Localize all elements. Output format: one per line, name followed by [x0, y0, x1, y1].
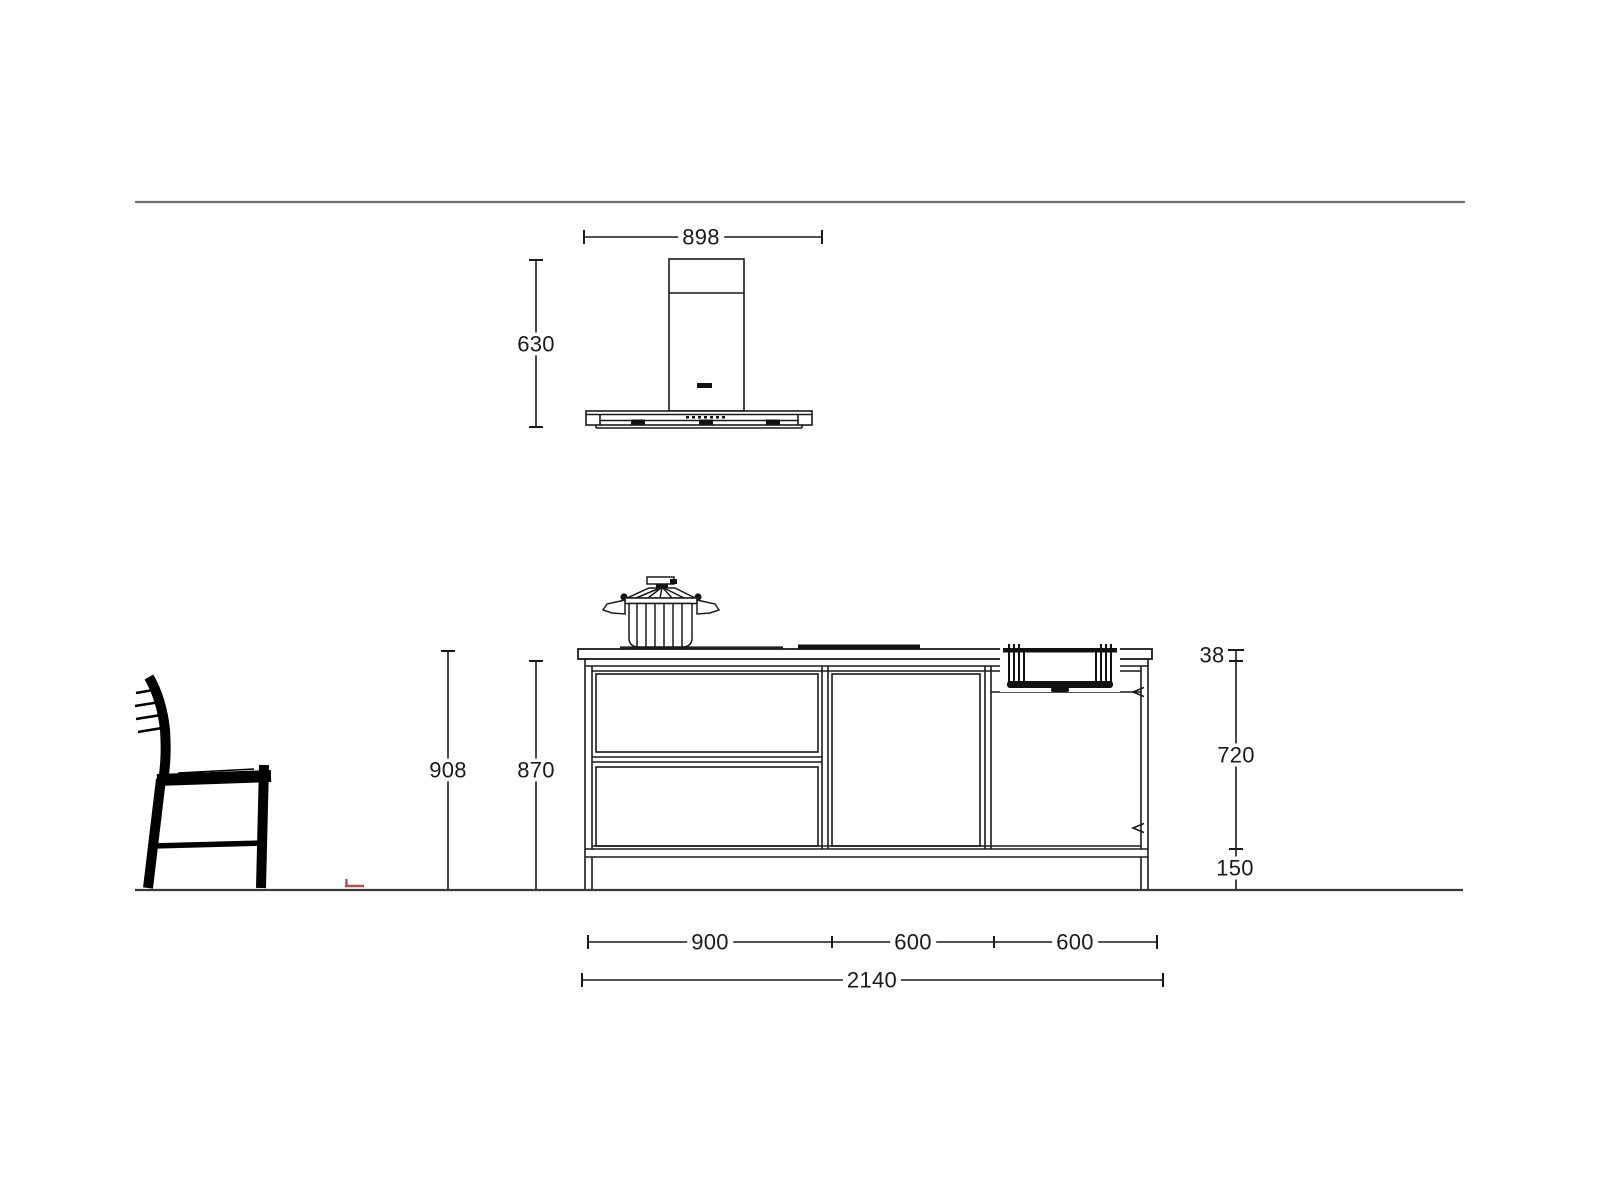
cooking-pot	[603, 577, 719, 649]
drawer-lower	[596, 767, 818, 846]
sink-basin-bottom	[1007, 681, 1113, 688]
elevation-drawing-canvas: 898 630 908 870 38 720 150 900 600 600 2…	[0, 0, 1600, 1200]
door-swing-arrow-bottom	[1133, 824, 1144, 833]
pot-lid-knob	[647, 577, 677, 588]
sink-drain	[1051, 687, 1069, 693]
cabinet-leg-right	[1141, 857, 1148, 889]
label-section-width-3: 600	[1052, 930, 1098, 953]
cabinet-leg-left	[585, 857, 592, 889]
label-overall-width: 2140	[843, 968, 901, 991]
label-plinth-height: 150	[1212, 856, 1258, 879]
door-middle	[832, 674, 980, 846]
dim-right-chain	[1228, 650, 1244, 889]
sink-rim	[1003, 648, 1117, 653]
hood-light-left	[631, 420, 645, 425]
chair-stretcher	[152, 843, 264, 846]
pot-handle-right	[697, 600, 719, 614]
dimension-lines	[441, 230, 1244, 987]
pot-body	[629, 604, 692, 649]
drawer-upper	[596, 674, 818, 752]
island-cabinet	[585, 659, 1148, 889]
hood-chimney	[669, 259, 744, 411]
range-hood	[586, 259, 812, 428]
hood-canopy	[586, 411, 812, 428]
label-carcass-height: 720	[1213, 743, 1259, 766]
label-worktop-height: 870	[513, 758, 559, 781]
label-overall-height: 908	[425, 758, 471, 781]
cad-linework	[0, 0, 1600, 1200]
pot-handle-left	[603, 600, 625, 614]
chair-silhouette	[135, 677, 271, 888]
sink	[1000, 643, 1120, 693]
chair-back-leg	[148, 779, 161, 888]
chair-seat	[157, 776, 271, 780]
floor-accent-mark	[345, 879, 364, 886]
chair-front-leg	[261, 765, 264, 888]
label-section-width-1: 900	[687, 930, 733, 953]
label-worktop-thickness: 38	[1198, 643, 1225, 666]
label-section-width-2: 600	[890, 930, 936, 953]
pot-rim	[625, 598, 697, 604]
hood-brand-logo	[697, 383, 712, 388]
label-hood-height: 630	[513, 332, 559, 355]
hood-light-right	[766, 420, 780, 425]
door-right-sink-cabinet	[991, 688, 1144, 833]
label-hood-width: 898	[678, 225, 724, 248]
hob-right	[798, 645, 920, 650]
